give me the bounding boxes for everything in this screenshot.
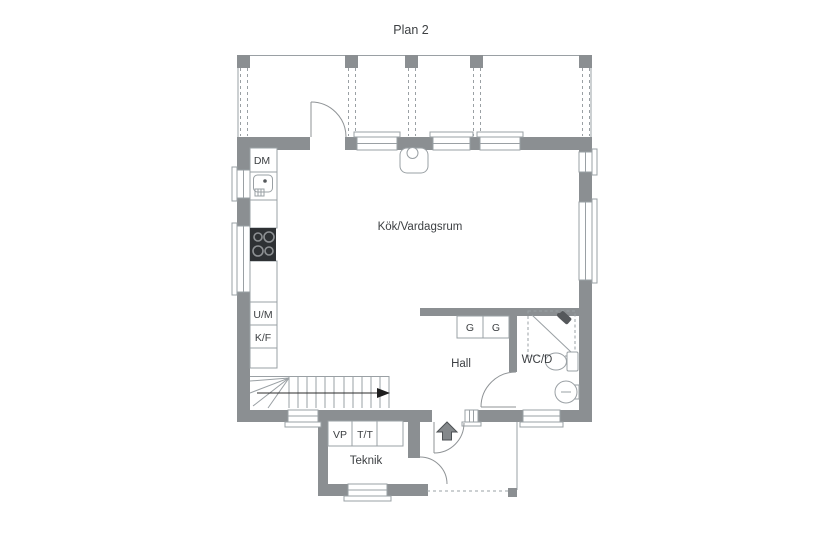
shower-icon	[528, 310, 575, 356]
label-washer-dryer: T/T	[357, 429, 373, 441]
entrance-porch	[427, 422, 517, 497]
label-wardrobe-right: G	[492, 322, 500, 334]
washbasin-icon	[555, 381, 579, 403]
balcony-door	[311, 102, 346, 137]
label-fridge-freezer: K/F	[255, 332, 271, 344]
room-label-utility: Teknik	[350, 455, 383, 467]
stair-direction-arrow-icon	[257, 388, 390, 398]
room-label-hall: Hall	[451, 358, 471, 370]
entry-arrow-icon	[437, 422, 457, 440]
plan-title: Plan 2	[393, 23, 428, 37]
room-label-kitchen-living: Kök/Vardagsrum	[378, 221, 463, 233]
entrance-sidelight-sill	[462, 422, 481, 426]
exterior-walls	[237, 137, 592, 422]
porch-post	[508, 488, 517, 497]
wc-door	[481, 372, 516, 407]
stove-icon	[250, 228, 276, 261]
label-heat-pump: VP	[333, 429, 347, 441]
floor-plan-drawing: Plan 2 Kök/Vardagsrum Hall WC/D Teknik D…	[0, 0, 830, 555]
wall-sink-icon	[400, 148, 428, 174]
utility-door	[420, 457, 447, 484]
balcony-posts	[237, 55, 592, 68]
entrance-sidelight	[465, 410, 478, 422]
label-dishwasher: DM	[254, 155, 270, 167]
room-label-wc: WC/D	[522, 354, 553, 366]
balcony-roof-dashed-lines	[241, 68, 590, 136]
staircase	[250, 376, 390, 408]
label-wardrobe-left: G	[466, 322, 474, 334]
hall-wardrobes	[457, 316, 509, 338]
floor-plan-page: Plan 2 Kök/Vardagsrum Hall WC/D Teknik D…	[0, 0, 830, 555]
label-oven-microwave: U/M	[253, 309, 272, 321]
